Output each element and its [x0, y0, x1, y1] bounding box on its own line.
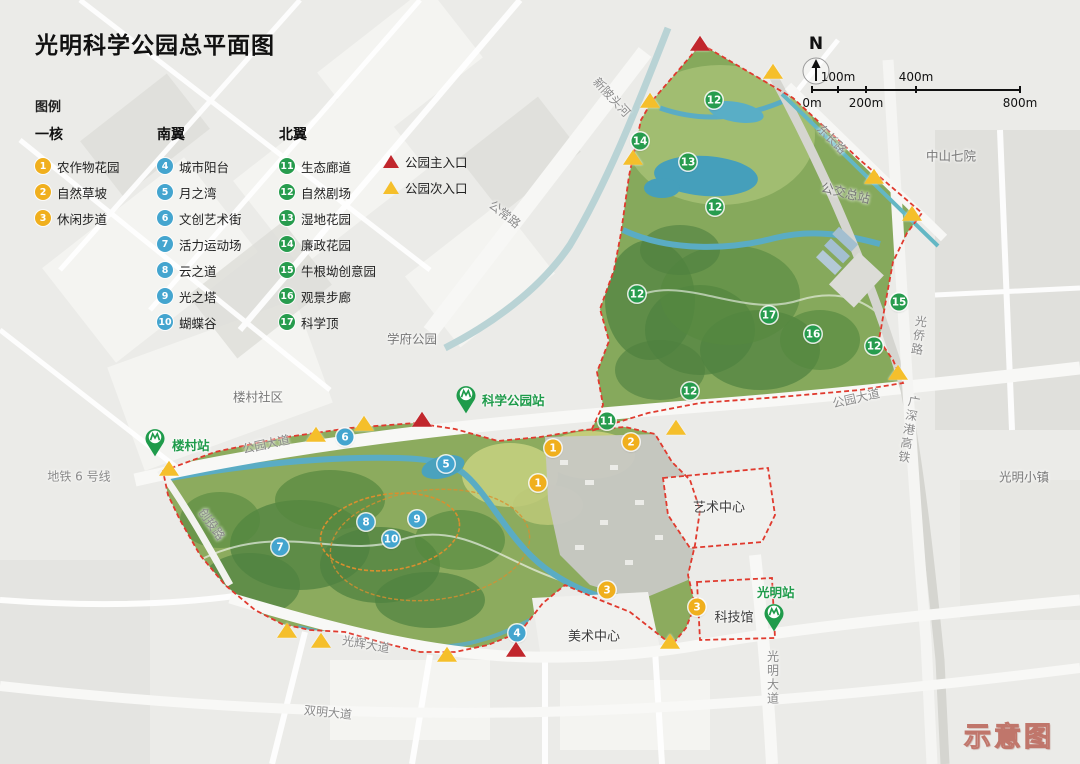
scalebar-label: 400m: [899, 70, 934, 84]
secondary-entrance-marker-icon: [623, 150, 643, 165]
scalebar: 0m100m200m400m800m: [800, 70, 1040, 112]
map-marker-12: 12: [707, 199, 724, 216]
legend-group-title: 一核: [35, 124, 131, 144]
secondary-entrance-marker-icon: [354, 416, 374, 431]
legend-entrance-label: 公园主入口: [405, 152, 468, 171]
legend-group-south: 南翼4城市阳台5月之湾6文创艺术街7活力运动场8云之道9光之塔10蝴蝶谷: [157, 124, 253, 335]
main-entrance-marker-icon: [412, 412, 432, 427]
scalebar-label: 800m: [1003, 96, 1038, 110]
secondary-entrance-marker-icon: [763, 64, 783, 79]
map-marker-16: 16: [805, 326, 822, 343]
legend-item-label: 活力运动场: [179, 235, 242, 254]
legend-item: 7活力运动场: [157, 231, 253, 257]
map-marker-15: 15: [891, 294, 908, 311]
north-label: N: [796, 34, 836, 54]
watermark: 示意图: [964, 715, 1054, 754]
legend-item-label: 城市阳台: [179, 157, 229, 176]
legend-item-number-icon: 8: [157, 262, 173, 278]
map-marker-7: 7: [272, 539, 289, 556]
legend-item: 15牛根坳创意园: [279, 257, 409, 283]
legend-item-number-icon: 12: [279, 184, 295, 200]
legend-item-label: 文创艺术街: [179, 209, 242, 228]
station-label: 光明站: [757, 582, 795, 601]
legend: 图例 一核1农作物花园2自然草坡3休闲步道南翼4城市阳台5月之湾6文创艺术街7活…: [35, 96, 575, 335]
map-marker-12: 12: [682, 383, 699, 400]
legend-group-title: 南翼: [157, 124, 253, 144]
legend-groups: 一核1农作物花园2自然草坡3休闲步道南翼4城市阳台5月之湾6文创艺术街7活力运动…: [35, 124, 575, 335]
map-label: 光明小镇: [999, 467, 1049, 486]
secondary-entrance-marker-icon: [660, 634, 680, 649]
map-marker-13: 13: [680, 154, 697, 171]
scalebar-tick: [915, 86, 917, 93]
legend-item-number-icon: 11: [279, 158, 295, 174]
map-label: 创投路: [195, 504, 230, 543]
scalebar-tick: [1019, 86, 1021, 93]
legend-item: 2自然草坡: [35, 179, 131, 205]
legend-item-label: 农作物花园: [57, 157, 120, 176]
map-marker-10: 10: [383, 531, 400, 548]
legend-item-number-icon: 1: [35, 158, 51, 174]
legend-item: 10蝴蝶谷: [157, 309, 253, 335]
legend-entrances: 公园主入口公园次入口: [383, 148, 468, 200]
legend-item-number-icon: 14: [279, 236, 295, 252]
map-marker-9: 9: [409, 511, 426, 528]
map-marker-6: 6: [337, 429, 354, 446]
legend-item-number-icon: 16: [279, 288, 295, 304]
legend-item-label: 湿地花园: [301, 209, 351, 228]
legend-item: 9光之塔: [157, 283, 253, 309]
legend-item: 14廉政花园: [279, 231, 409, 257]
legend-item-label: 自然剧场: [301, 183, 351, 202]
scalebar-tick: [865, 86, 867, 93]
legend-item-label: 廉政花园: [301, 235, 351, 254]
scalebar-label: 200m: [849, 96, 884, 110]
legend-item-number-icon: 17: [279, 314, 295, 330]
legend-item-label: 生态廊道: [301, 157, 351, 176]
legend-item: 16观景步廊: [279, 283, 409, 309]
map-marker-1: 1: [545, 440, 562, 457]
page-title: 光明科学公园总平面图: [35, 26, 275, 60]
legend-item: 13湿地花园: [279, 205, 409, 231]
scalebar-tick: [811, 86, 813, 93]
map-label: 科技馆: [714, 607, 753, 626]
legend-item: 17科学顶: [279, 309, 409, 335]
legend-entrance: 公园次入口: [383, 174, 468, 200]
map-label: 东长路: [813, 120, 850, 157]
legend-item-label: 休闲步道: [57, 209, 107, 228]
main-entrance-marker-icon: [690, 36, 710, 51]
metro-station-pin-icon: [454, 382, 478, 418]
map-marker-2: 2: [623, 434, 640, 451]
map-marker-12: 12: [706, 92, 723, 109]
secondary-entrance-marker-icon: [864, 169, 884, 184]
map-marker-12: 12: [866, 338, 883, 355]
map-label: 楼村社区: [233, 387, 283, 406]
legend-item-number-icon: 9: [157, 288, 173, 304]
legend-item-label: 云之道: [179, 261, 217, 280]
legend-item-label: 蝴蝶谷: [179, 313, 217, 332]
secondary-entrance-marker-icon: [159, 461, 179, 476]
legend-item-number-icon: 5: [157, 184, 173, 200]
scalebar-label: 0m: [802, 96, 821, 110]
metro-station-pin-icon: [143, 425, 167, 461]
legend-group-title: 北翼: [279, 124, 409, 144]
secondary-entrance-marker-icon: [277, 623, 297, 638]
secondary-entrance-marker-icon: [640, 93, 660, 108]
legend-item-label: 牛根坳创意园: [301, 261, 376, 280]
main-entrance-marker-icon: [506, 642, 526, 657]
secondary-entrance-marker-icon: [306, 427, 326, 442]
map-marker-11: 11: [599, 413, 616, 430]
station-label: 楼村站: [172, 435, 210, 454]
legend-item-number-icon: 4: [157, 158, 173, 174]
legend-item-number-icon: 2: [35, 184, 51, 200]
map-label: 艺术中心: [693, 497, 745, 516]
legend-entrance-label: 公园次入口: [405, 178, 468, 197]
map-label: 美术中心: [568, 626, 620, 645]
secondary-entrance-marker-icon: [888, 365, 908, 380]
legend-item: 3休闲步道: [35, 205, 131, 231]
station-label: 科学公园站: [482, 390, 545, 409]
legend-item: 5月之湾: [157, 179, 253, 205]
legend-item: 6文创艺术街: [157, 205, 253, 231]
legend-item: 1农作物花园: [35, 153, 131, 179]
park-masterplan-map: 12141312121716151212116578910412133新陂头河公…: [0, 0, 1080, 764]
legend-item: 4城市阳台: [157, 153, 253, 179]
map-marker-17: 17: [761, 307, 778, 324]
map-marker-14: 14: [632, 133, 649, 150]
map-marker-4: 4: [509, 625, 526, 642]
legend-item-label: 自然草坡: [57, 183, 107, 202]
secondary-entrance-marker-icon: [437, 647, 457, 662]
legend-item-number-icon: 10: [157, 314, 173, 330]
legend-entrance: 公园主入口: [383, 148, 468, 174]
map-label: 光明大道: [765, 650, 782, 706]
secondary-entrance-marker-icon: [666, 420, 686, 435]
map-label: 光辉大道: [341, 631, 391, 656]
legend-item-number-icon: 7: [157, 236, 173, 252]
map-label: 双明大道: [303, 701, 353, 723]
map-marker-3: 3: [599, 582, 616, 599]
map-marker-8: 8: [358, 514, 375, 531]
map-label: 新陂头河: [589, 74, 634, 121]
legend-item-label: 光之塔: [179, 287, 217, 306]
map-marker-3: 3: [689, 599, 706, 616]
legend-item-number-icon: 6: [157, 210, 173, 226]
map-label: 地铁 6 号线: [47, 468, 110, 485]
map-label: 公园大道: [241, 431, 292, 458]
secondary-entrance-marker-icon: [311, 633, 331, 648]
map-label: 广深港高铁: [895, 394, 924, 466]
map-label: 光侨路: [908, 314, 931, 358]
main-entrance-icon: [383, 155, 399, 168]
legend-heading: 图例: [35, 96, 575, 115]
secondary-entrance-marker-icon: [902, 206, 922, 221]
map-marker-5: 5: [438, 456, 455, 473]
scalebar-tick: [837, 86, 839, 93]
metro-station-pin-icon: [762, 600, 786, 636]
legend-item: 8云之道: [157, 257, 253, 283]
legend-item-label: 科学顶: [301, 313, 339, 332]
secondary-entrance-icon: [383, 181, 399, 194]
map-marker-12: 12: [629, 286, 646, 303]
legend-group-core: 一核1农作物花园2自然草坡3休闲步道: [35, 124, 131, 335]
legend-item-label: 月之湾: [179, 183, 217, 202]
legend-item-number-icon: 13: [279, 210, 295, 226]
scalebar-label: 100m: [821, 70, 856, 84]
legend-item-number-icon: 3: [35, 210, 51, 226]
map-marker-1: 1: [530, 475, 547, 492]
map-label: 公园大道: [831, 384, 882, 411]
legend-item-number-icon: 15: [279, 262, 295, 278]
map-label: 中山七院: [926, 146, 976, 165]
legend-item-label: 观景步廊: [301, 287, 351, 306]
